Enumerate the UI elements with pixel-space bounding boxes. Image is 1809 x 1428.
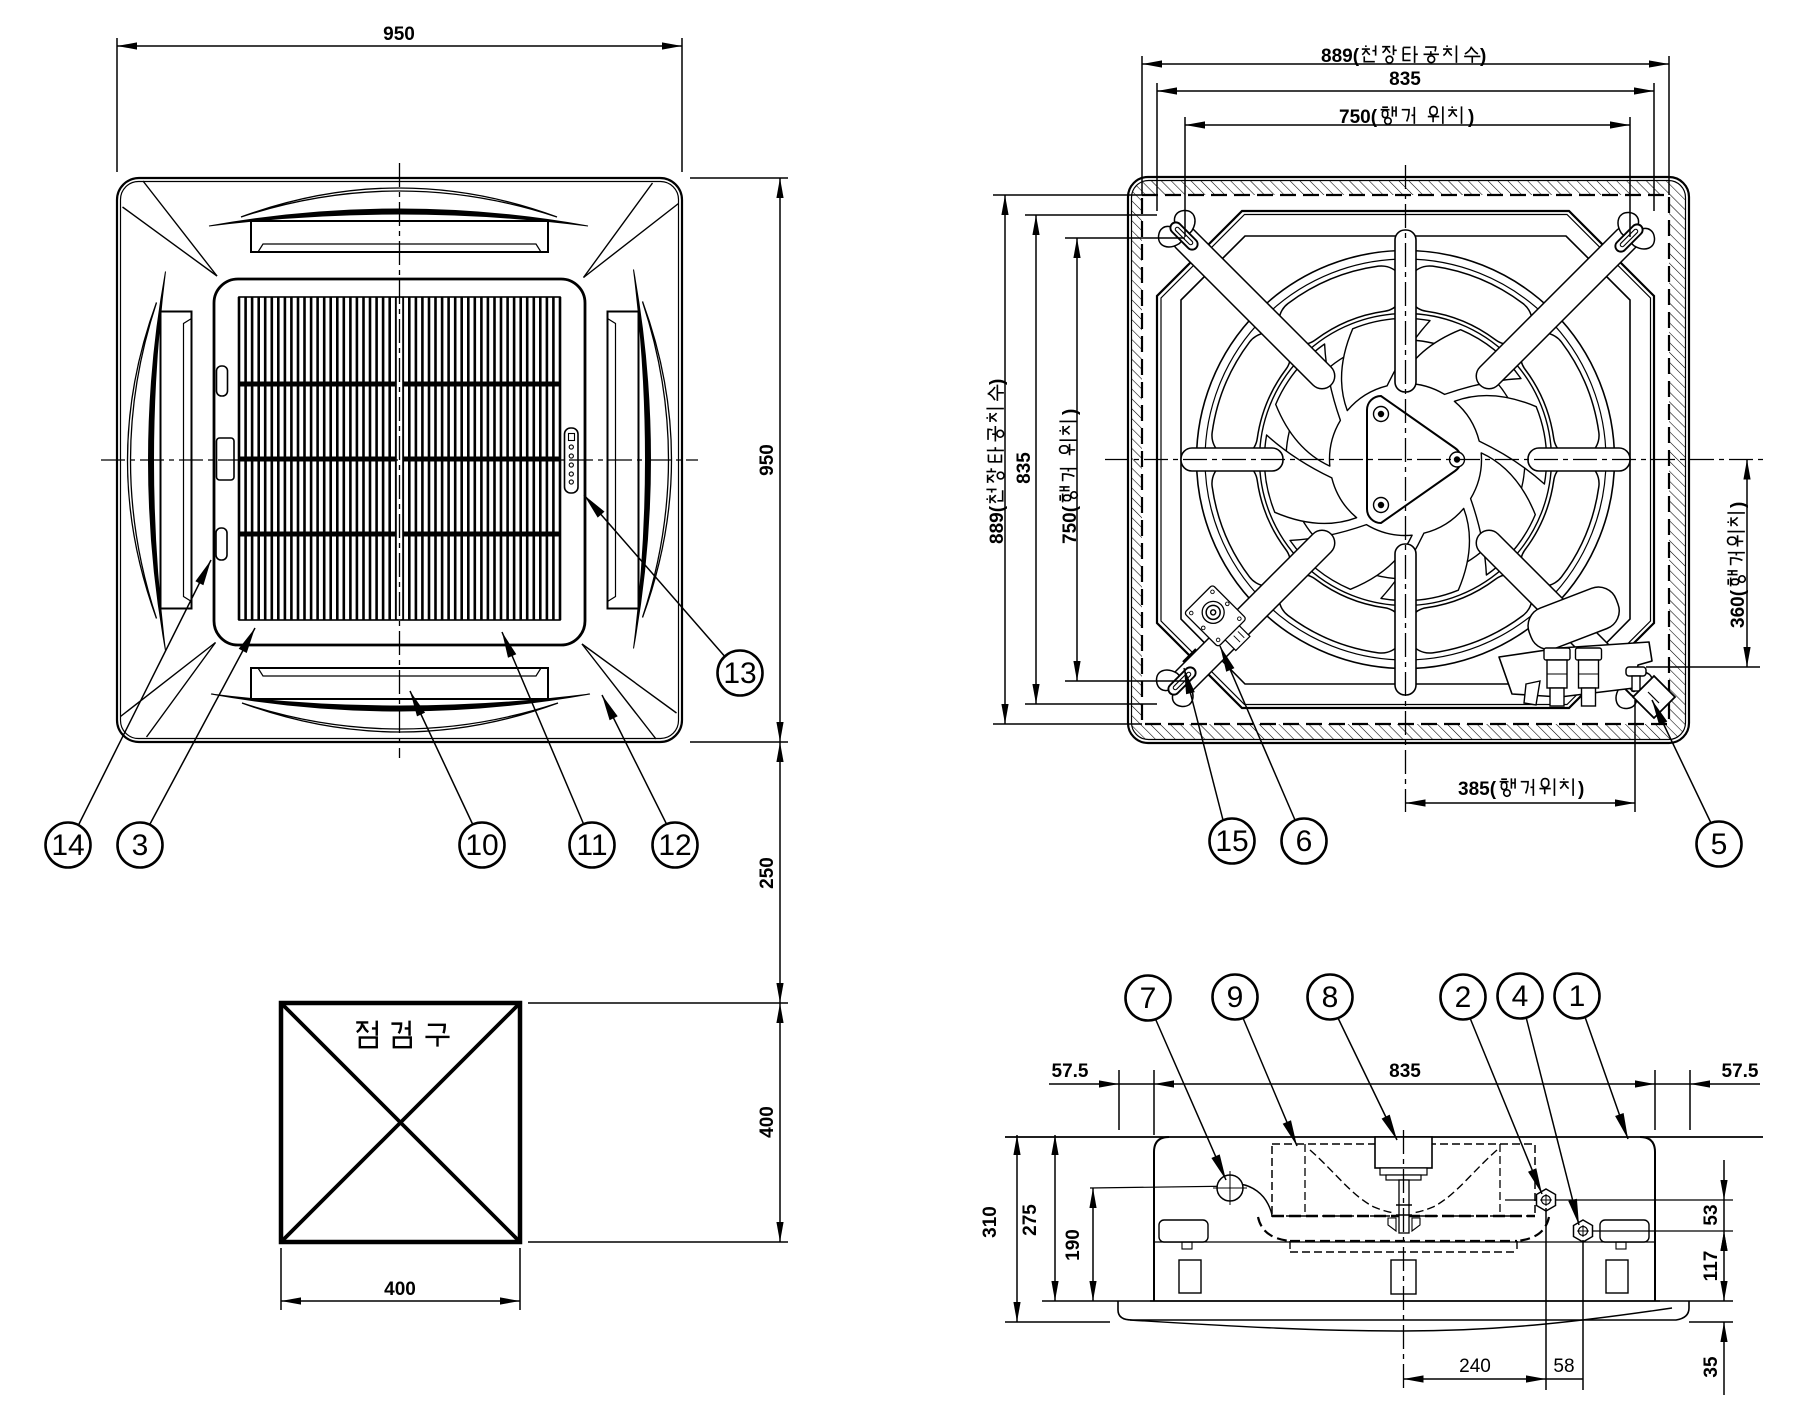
svg-text:): )	[987, 379, 1008, 385]
svg-text:58: 58	[1553, 1356, 1574, 1377]
svg-text:385(: 385(	[1458, 779, 1497, 800]
svg-text:5: 5	[1711, 828, 1728, 861]
svg-text:15: 15	[1215, 825, 1248, 858]
svg-text:835: 835	[1389, 69, 1421, 90]
svg-text:275: 275	[1020, 1204, 1041, 1236]
svg-text:2: 2	[1455, 981, 1472, 1014]
svg-text:889(: 889(	[1321, 46, 1360, 67]
svg-text:835: 835	[1389, 1061, 1421, 1082]
svg-text:950: 950	[383, 24, 415, 45]
svg-text:889(: 889(	[987, 505, 1008, 544]
svg-text:750(: 750(	[1339, 107, 1378, 128]
svg-text:57.5: 57.5	[1722, 1061, 1759, 1082]
svg-text:53: 53	[1701, 1204, 1722, 1225]
svg-text:): )	[1480, 46, 1486, 67]
svg-text:9: 9	[1227, 981, 1244, 1014]
svg-text:3: 3	[132, 829, 149, 862]
svg-text:): )	[1468, 107, 1474, 128]
svg-text:12: 12	[658, 829, 691, 862]
svg-text:6: 6	[1296, 825, 1313, 858]
svg-text:): )	[1060, 409, 1081, 415]
svg-text:190: 190	[1063, 1229, 1084, 1261]
svg-text:11: 11	[576, 829, 607, 862]
svg-text:360(: 360(	[1728, 589, 1749, 628]
svg-text:): )	[1578, 779, 1584, 800]
svg-text:13: 13	[723, 657, 756, 690]
svg-text:835: 835	[1014, 452, 1035, 484]
svg-text:): )	[1728, 502, 1749, 508]
svg-text:8: 8	[1322, 981, 1339, 1014]
svg-text:400: 400	[757, 1106, 778, 1138]
svg-text:57.5: 57.5	[1052, 1061, 1089, 1082]
svg-text:1: 1	[1569, 980, 1586, 1013]
svg-text:750(: 750(	[1060, 505, 1081, 544]
svg-text:240: 240	[1459, 1356, 1491, 1377]
svg-text:14: 14	[51, 829, 84, 862]
svg-text:4: 4	[1512, 980, 1529, 1013]
svg-text:35: 35	[1701, 1356, 1722, 1378]
svg-text:950: 950	[757, 444, 778, 476]
svg-text:10: 10	[465, 829, 498, 862]
svg-text:7: 7	[1140, 982, 1157, 1015]
svg-text:250: 250	[757, 857, 778, 889]
svg-text:117: 117	[1701, 1251, 1722, 1282]
svg-text:310: 310	[980, 1206, 1001, 1238]
svg-text:400: 400	[384, 1279, 416, 1300]
